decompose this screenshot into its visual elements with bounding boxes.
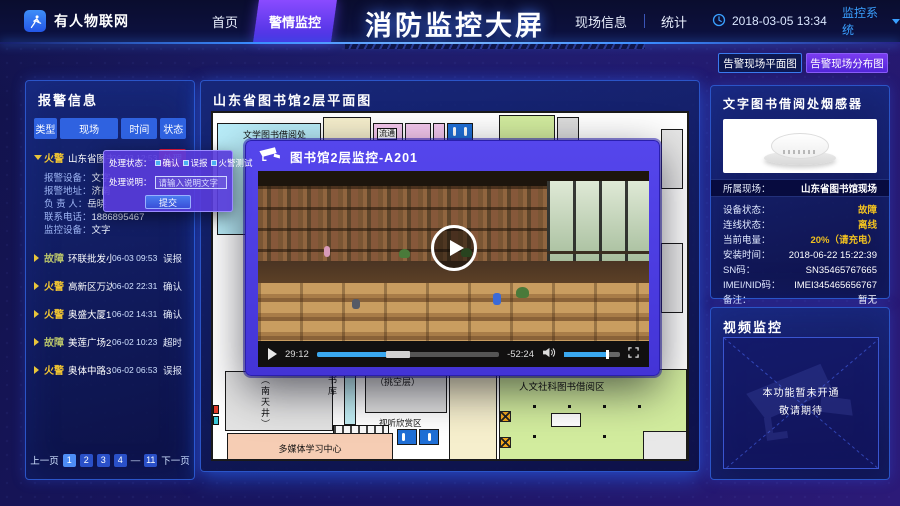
- sensor-detail-value: 20%（请充电）: [810, 233, 877, 248]
- expand-caret-icon[interactable]: [34, 338, 44, 346]
- alarm-type: 火警: [44, 362, 68, 377]
- camera-video-modal: 图书馆2层监控-A201 29:12: [245, 140, 660, 376]
- option-label: 确认: [163, 157, 180, 169]
- alarm-panel-title: 报警信息: [26, 81, 194, 114]
- topbar: 有人物联网 首页 警情监控 消防监控大屏 现场信息 统计 2018-03-05 …: [0, 0, 900, 42]
- option-fire-drill[interactable]: 火警测试: [211, 157, 253, 169]
- page-4-button[interactable]: 4: [114, 454, 127, 467]
- option-label: 火警测试: [219, 157, 253, 169]
- sensor-detail-value: SN35465767665: [806, 263, 877, 278]
- alarm-row[interactable]: 火警 奥盛大厦1号楼 06-02 14:31 确认: [34, 306, 186, 321]
- alarm-table-header: 类型 现场 时间 状态: [34, 118, 186, 139]
- alarm-status: 超时: [159, 335, 186, 349]
- sensor-detail-value: 2018-06-22 15:22:39: [789, 248, 877, 263]
- nav-alarm-monitor-active[interactable]: 警情监控: [256, 0, 334, 42]
- handle-alarm-popup: 处理状态： 确认 误报 火警测试 处理说明： 提交: [103, 150, 233, 212]
- smoke-sensor-panel: 文字图书借阅处烟感器 所属现场： 山东省图书馆现场 设备状态：故障 连线状态：离…: [710, 85, 890, 299]
- alarm-info-panel: 报警信息 类型 现场 时间 状态 火警 山东省图书馆2层 06-03 12:53…: [25, 80, 195, 480]
- page-2-button[interactable]: 2: [80, 454, 93, 467]
- checkbox-icon[interactable]: [211, 160, 217, 166]
- room-label: （挑空层）: [375, 375, 420, 388]
- col-site[interactable]: 现场: [60, 118, 119, 139]
- collapse-caret-icon[interactable]: [34, 155, 44, 160]
- restroom: [419, 429, 439, 445]
- detail-label: 报警地址：: [44, 185, 92, 198]
- modal-title: 图书馆2层监控-A201: [290, 147, 418, 166]
- alarm-row[interactable]: 火警 高新区万达广场 06-02 22:31 确认: [34, 278, 186, 293]
- sensor-detail-label: 备注：: [723, 293, 752, 308]
- header-dash-pattern: [345, 44, 645, 49]
- alarm-time: 06-02 10:23: [112, 337, 159, 347]
- option-false-alarm[interactable]: 误报: [183, 157, 208, 169]
- alarm-site: 环联批发小商场: [68, 251, 112, 265]
- placeholder-text: 本功能暂未开通 敬请期待: [724, 385, 878, 421]
- alarm-site: 高新区万达广场: [68, 279, 112, 293]
- remaining-time: -52:24: [507, 349, 534, 360]
- alarm-status: 误报: [159, 251, 186, 265]
- logo-text: 有人物联网: [54, 11, 129, 31]
- option-confirm[interactable]: 确认: [155, 157, 180, 169]
- page-gap: —: [131, 455, 141, 466]
- alarm-distribution-button[interactable]: 告警现场分布图: [806, 53, 888, 73]
- submit-button[interactable]: 提交: [145, 195, 191, 209]
- nav-home[interactable]: 首页: [195, 0, 255, 42]
- sensor-detail-label: 安装时间：: [723, 248, 771, 263]
- clock-icon: [712, 13, 726, 30]
- detail-label: 联系电话：: [44, 211, 92, 224]
- alarm-type: 火警: [44, 306, 68, 321]
- sensor-detail-value: 故障: [858, 203, 877, 218]
- sensor-detail-label: 设备状态：: [723, 203, 771, 218]
- handle-desc-label: 处理说明：: [109, 176, 152, 188]
- pagination: 上一页 1 2 3 4 — 11 下一页: [26, 453, 194, 467]
- datetime-text: 2018-03-05 13:34: [732, 14, 827, 28]
- room-label: （南天井）: [259, 375, 272, 430]
- progress-handle[interactable]: [386, 351, 410, 358]
- room-label: 流通: [377, 128, 397, 140]
- map-marker-red: [213, 405, 219, 414]
- datetime: 2018-03-05 13:34: [712, 0, 827, 42]
- alarm-type: 火警: [44, 150, 68, 165]
- nav-alarm-monitor-label: 警情监控: [269, 12, 321, 31]
- col-status[interactable]: 状态: [160, 118, 186, 139]
- video-player: 29:12 -52:24: [258, 171, 649, 367]
- page-3-button[interactable]: 3: [97, 454, 110, 467]
- alarm-time: 06-02 14:31: [112, 309, 159, 319]
- video-placeholder-box: 本功能暂未开通 敬请期待: [723, 337, 879, 469]
- sensor-detail-value: 离线: [858, 218, 877, 233]
- volume-handle[interactable]: [606, 350, 609, 359]
- alarm-status: 误报: [159, 363, 186, 377]
- sensor-details: 设备状态：故障 连线状态：离线 当前电量：20%（请充电） 安装时间：2018-…: [711, 197, 889, 308]
- alarm-time: 06-03 09:53: [112, 253, 159, 263]
- cctv-camera-icon: [258, 146, 282, 167]
- room-label: 书库: [326, 375, 339, 397]
- detail-label: 监控设备：: [44, 224, 92, 237]
- chevron-down-icon: [892, 19, 900, 24]
- sensor-detail-value: IMEI345465656767: [794, 278, 877, 293]
- room-inner-white: [551, 413, 581, 427]
- nav-divider: [644, 14, 645, 28]
- room-south-atrium: [225, 371, 333, 431]
- expand-caret-icon[interactable]: [34, 282, 44, 290]
- sensor-site-row: 所属现场： 山东省图书馆现场: [711, 179, 889, 197]
- alarm-type: 故障: [44, 250, 68, 265]
- checkbox-icon[interactable]: [183, 160, 189, 166]
- page-title: 消防监控大屏: [352, 4, 558, 43]
- alarm-status: 确认: [159, 307, 186, 321]
- sensor-detail-label: IMEI/NID码：: [723, 278, 781, 293]
- detail-label: 负 责 人：: [44, 198, 87, 211]
- room-label: 多媒体学习中心: [278, 442, 341, 455]
- expand-caret-icon[interactable]: [34, 366, 44, 374]
- current-time: 29:12: [285, 349, 309, 360]
- sensor-title: 文字图书借阅处烟感器: [711, 86, 889, 117]
- sensor-detail-label: 当前电量：: [723, 233, 771, 248]
- next-page-button[interactable]: 下一页: [161, 453, 190, 467]
- prev-page-button[interactable]: 上一页: [30, 453, 59, 467]
- sensor-detail-label: 连线状态：: [723, 218, 771, 233]
- video-controls: 29:12 -52:24: [258, 341, 649, 367]
- restroom: [397, 429, 417, 445]
- sensor-detail-label: SN码：: [723, 263, 755, 278]
- checkbox-icon[interactable]: [155, 160, 161, 166]
- map-marker-cyan: [213, 416, 219, 425]
- floorplan-title: 山东省图书馆2层平面图: [201, 81, 699, 114]
- sensor-detail-value: 暂无: [858, 293, 877, 308]
- placeholder-line-2: 敬请期待: [724, 403, 878, 421]
- handle-status-label: 处理状态：: [109, 157, 152, 169]
- logo[interactable]: 有人物联网: [24, 0, 129, 42]
- room-right-1: [661, 129, 683, 189]
- alarm-time: 06-02 22:31: [112, 281, 159, 291]
- smoke-detector-image: [723, 119, 877, 173]
- system-dropdown[interactable]: 监控系统: [842, 0, 900, 42]
- fullscreen-icon[interactable]: [628, 345, 639, 363]
- site-label: 所属现场：: [723, 181, 771, 195]
- system-dropdown-label: 监控系统: [842, 4, 887, 38]
- option-label: 误报: [191, 157, 208, 169]
- room-corridor-beige: [449, 371, 497, 461]
- room-right-2: [661, 243, 683, 313]
- alarm-site: 奥盛大厦1号楼: [68, 307, 112, 321]
- alarm-floorplan-button[interactable]: 告警现场平面图: [718, 53, 802, 73]
- detail-value: 文字: [92, 224, 111, 237]
- hazard-marker: [500, 437, 511, 448]
- col-type[interactable]: 类型: [34, 118, 57, 139]
- handle-desc-input[interactable]: [155, 176, 227, 189]
- video-monitor-panel: 视频监控 本功能暂未开通 敬请期待: [710, 307, 890, 480]
- room-label: 人文社科图书借阅区: [519, 379, 605, 393]
- last-page-button[interactable]: 11: [144, 454, 157, 467]
- expand-caret-icon[interactable]: [34, 254, 44, 262]
- play-overlay-button[interactable]: [431, 225, 477, 271]
- site-value: 山东省图书馆现场: [801, 181, 877, 195]
- progress-fill: [317, 352, 386, 357]
- progress-bar[interactable]: [317, 352, 499, 357]
- col-time[interactable]: 时间: [121, 118, 157, 139]
- alarm-time: 06-02 06:53: [112, 365, 159, 375]
- page-1-button[interactable]: 1: [63, 454, 76, 467]
- alarm-row[interactable]: 火警 奥体中路314号 06-02 06:53 误报: [34, 362, 186, 377]
- alarm-row[interactable]: 故障 环联批发小商场 06-03 09:53 误报: [34, 250, 186, 265]
- alarm-type: 故障: [44, 334, 68, 349]
- volume-icon[interactable]: [542, 345, 556, 363]
- alarm-site: 奥体中路314号: [68, 363, 112, 377]
- room-gray-bottom-right: [643, 431, 687, 461]
- detail-label: 报警设备：: [44, 172, 92, 185]
- detail-value: 1886895467: [92, 211, 145, 224]
- runner-logo-icon: [24, 10, 46, 32]
- nav-statistics[interactable]: 统计: [648, 0, 700, 42]
- room-cyan-strip: [344, 371, 356, 425]
- placeholder-line-1: 本功能暂未开通: [724, 385, 878, 403]
- modal-header: 图书馆2层监控-A201: [246, 141, 659, 171]
- alarm-row[interactable]: 故障 美莲广场2层 06-02 10:23 超时: [34, 334, 186, 349]
- volume-fill: [564, 352, 606, 357]
- fire-monitor-dashboard: 有人物联网 首页 警情监控 消防监控大屏 现场信息 统计 2018-03-05 …: [0, 0, 900, 506]
- alarm-status: 确认: [159, 279, 186, 293]
- video-frame-library-scene: [258, 171, 649, 341]
- hazard-marker: [500, 411, 511, 422]
- play-button[interactable]: [268, 348, 277, 360]
- alarm-site: 美莲广场2层: [68, 335, 112, 349]
- nav-scene-info[interactable]: 现场信息: [565, 0, 637, 42]
- alarm-type: 火警: [44, 278, 68, 293]
- volume-slider[interactable]: [564, 352, 620, 357]
- room-multimedia-center: 多媒体学习中心: [227, 433, 393, 461]
- expand-caret-icon[interactable]: [34, 310, 44, 318]
